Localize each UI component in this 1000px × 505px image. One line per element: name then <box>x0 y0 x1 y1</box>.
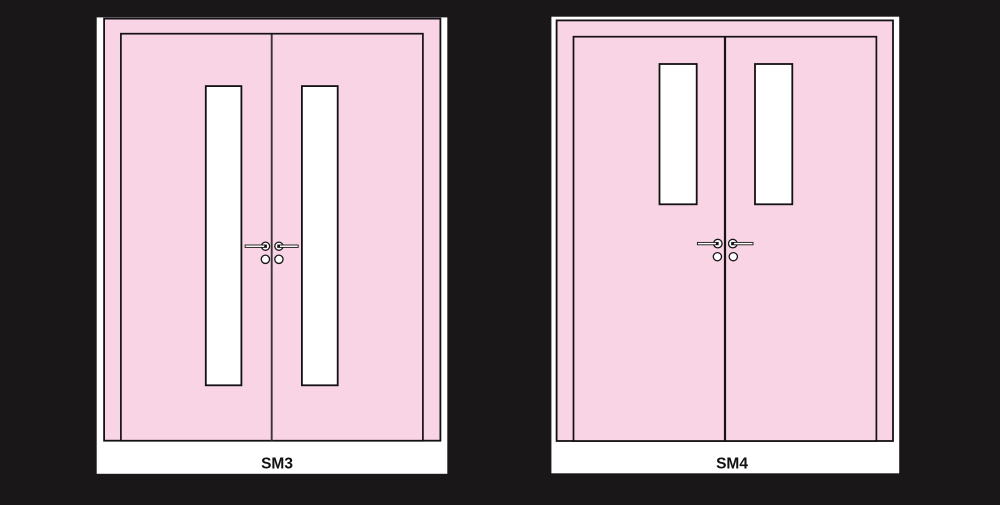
svg-text:SM4: SM4 <box>716 455 748 472</box>
svg-text:SM3: SM3 <box>261 456 293 473</box>
